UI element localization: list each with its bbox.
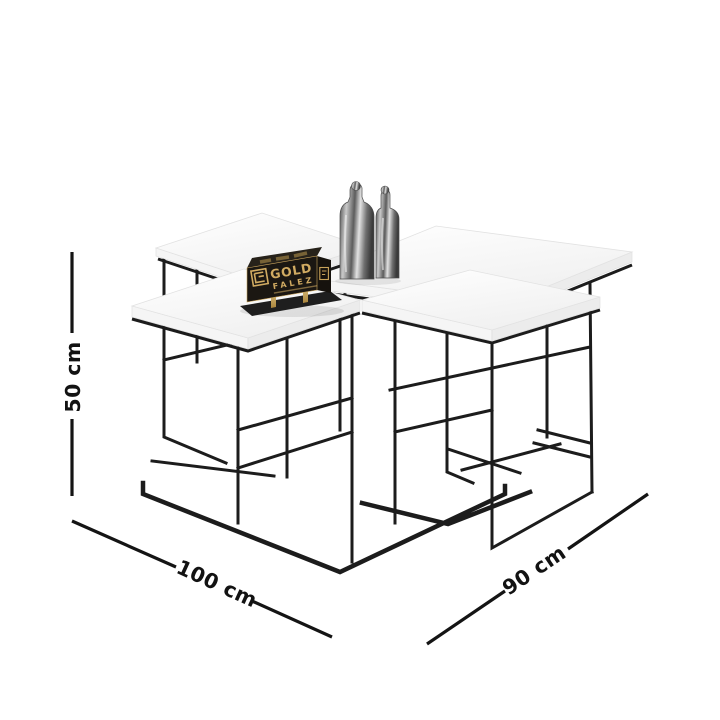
- height-dimension-label: 50 cm: [61, 341, 85, 412]
- width-dimension-label: 100 cm: [173, 555, 261, 612]
- decor-bottles: [335, 182, 401, 286]
- dimension-width: 100 cm: [72, 521, 332, 637]
- bottle-right-stopper: [381, 186, 389, 194]
- depth-dimension-label: 90 cm: [498, 540, 570, 600]
- frame-base-rails: [143, 483, 530, 572]
- dimension-height: 50 cm: [61, 252, 85, 496]
- product-dimension-diagram: GOLD FALEZ 50 cm 100 cm 90 cm: [0, 0, 720, 720]
- bottle-left-stopper: [352, 182, 361, 191]
- bottle-right: [376, 190, 399, 278]
- illustration-canvas: GOLD FALEZ 50 cm 100 cm 90 cm: [0, 0, 720, 720]
